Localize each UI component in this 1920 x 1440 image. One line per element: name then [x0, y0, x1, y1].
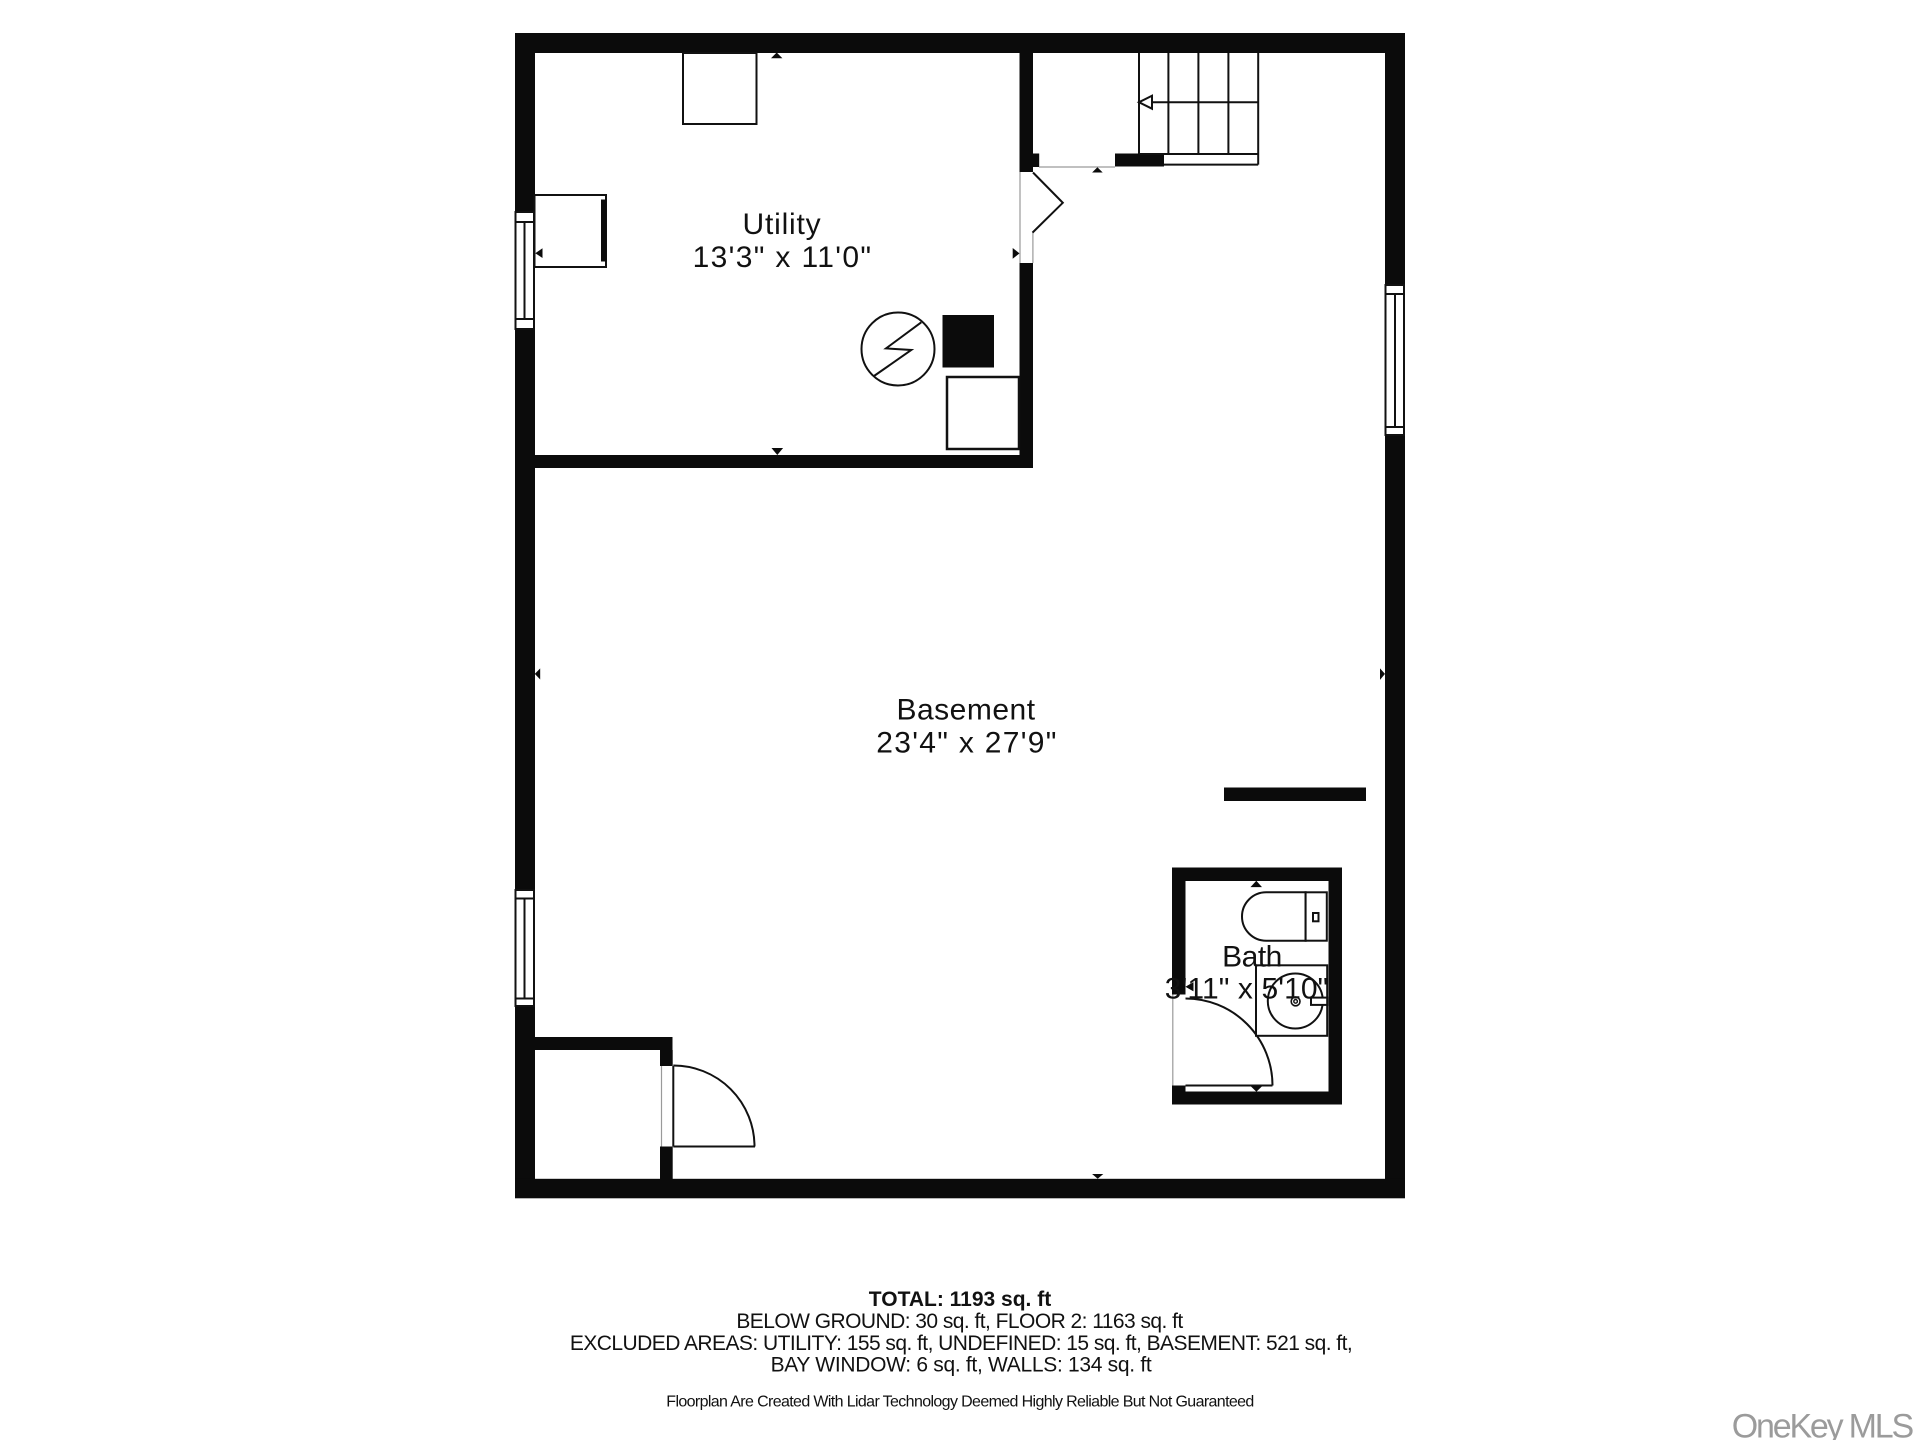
svg-text:TOTAL: 1193 sq. ft: TOTAL: 1193 sq. ft [869, 1288, 1051, 1311]
svg-text:Utility: Utility [743, 208, 822, 241]
svg-text:BELOW GROUND: 30 sq. ft, FLOOR: BELOW GROUND: 30 sq. ft, FLOOR 2: 1163 s… [736, 1310, 1183, 1333]
svg-text:BAY WINDOW: 6 sq. ft, WALLS: 1: BAY WINDOW: 6 sq. ft, WALLS: 134 sq. ft [771, 1353, 1152, 1376]
svg-text:EXCLUDED AREAS: UTILITY: 155 s: EXCLUDED AREAS: UTILITY: 155 sq. ft, UND… [570, 1332, 1352, 1355]
svg-text:23'4" x 27'9": 23'4" x 27'9" [876, 727, 1057, 760]
svg-text:OneKey MLS: OneKey MLS [1732, 1408, 1914, 1440]
svg-text:Floorplan Are Created With Lid: Floorplan Are Created With Lidar Technol… [666, 1393, 1253, 1410]
svg-text:Bath: Bath [1222, 941, 1282, 974]
svg-text:13'3" x 11'0": 13'3" x 11'0" [693, 241, 873, 274]
svg-text:3'11" x 5'10": 3'11" x 5'10" [1165, 973, 1329, 1006]
svg-text:Basement: Basement [896, 694, 1035, 727]
